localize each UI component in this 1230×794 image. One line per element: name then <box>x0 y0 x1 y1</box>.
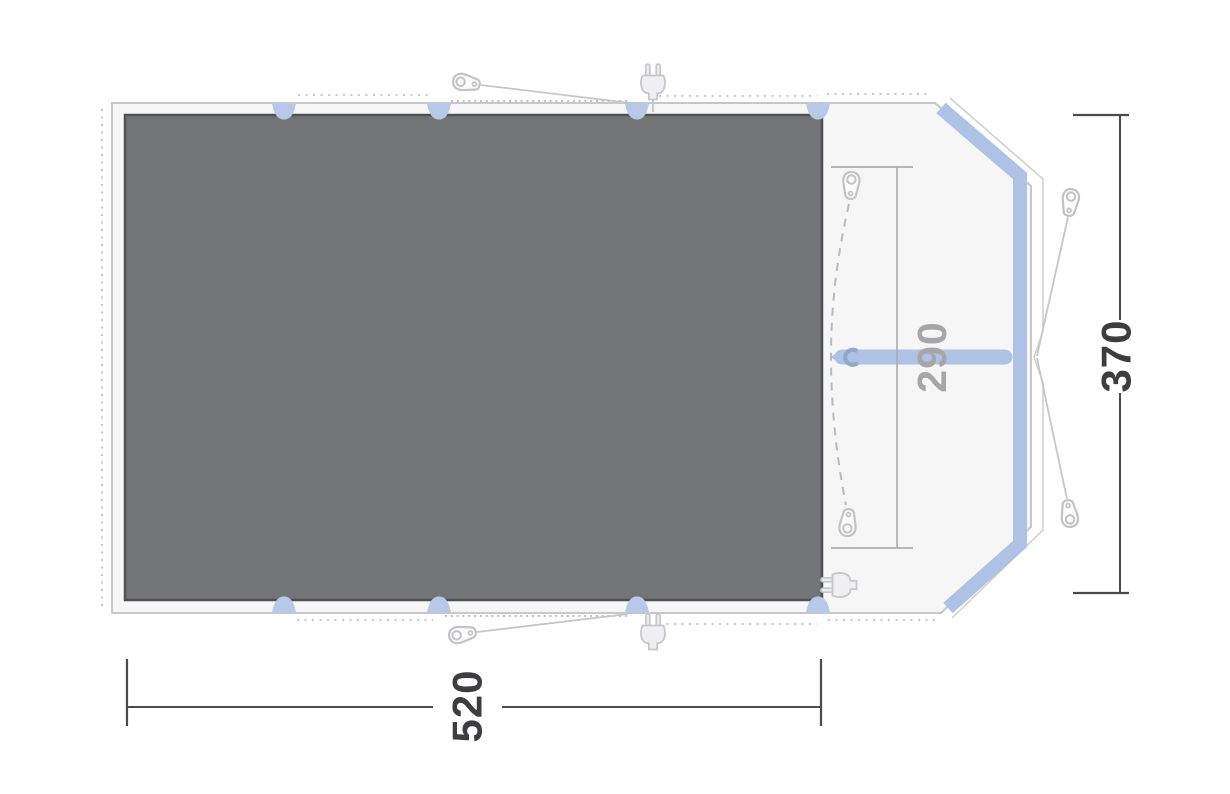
guyline-peg-icon <box>1060 188 1080 217</box>
dim-520: 520 <box>127 659 821 743</box>
groundsheet <box>125 115 822 600</box>
floorplan-canvas: 290 520 370 <box>0 0 1230 794</box>
guyline <box>1037 217 1068 356</box>
guyline <box>477 614 628 632</box>
guyline-peg-icon <box>452 72 481 93</box>
guyline <box>1037 358 1067 499</box>
guyline-peg-icon <box>448 624 477 645</box>
guyline-peg-icon <box>1059 499 1079 528</box>
dim-520-label: 520 <box>444 669 491 742</box>
dim-370: 370 <box>1073 115 1140 593</box>
dim-290-label: 290 <box>909 321 955 392</box>
power-plug-icon <box>641 614 665 650</box>
dim-370-label: 370 <box>1093 319 1140 392</box>
tent-floorplan-diagram: 290 520 370 <box>0 0 1230 794</box>
power-plug-icon <box>641 64 665 100</box>
